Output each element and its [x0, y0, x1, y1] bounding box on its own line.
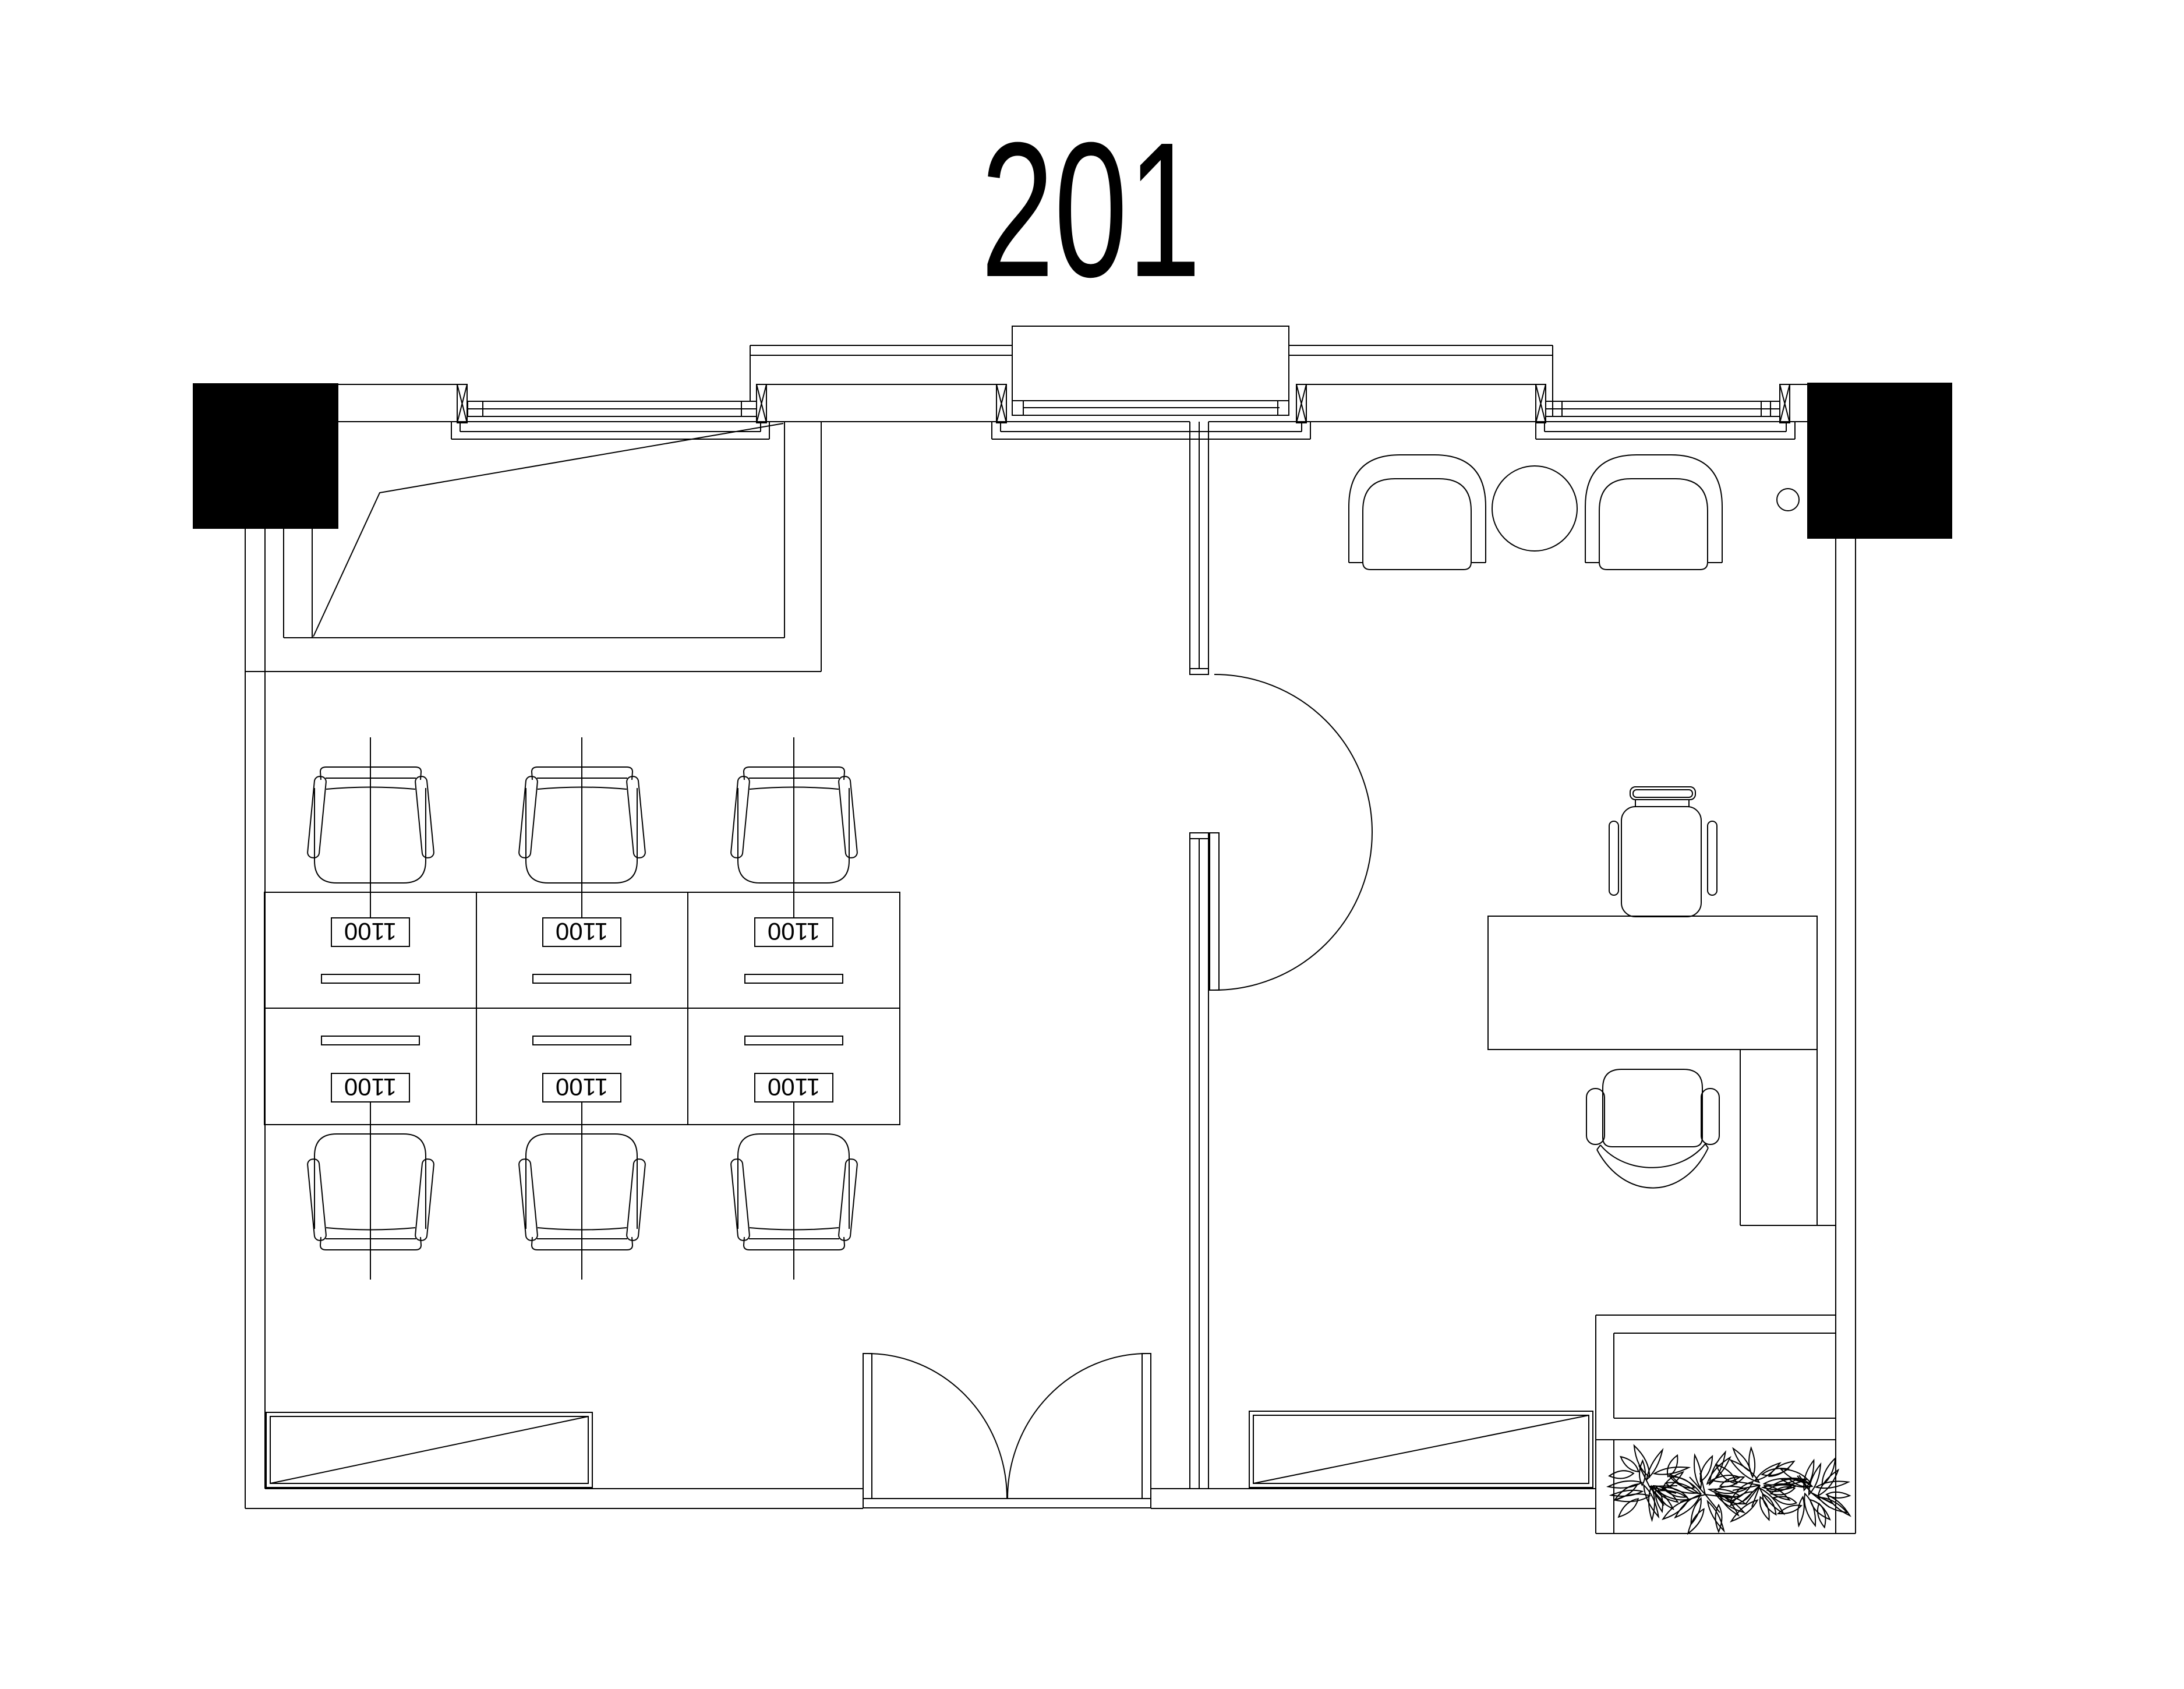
svg-text:201: 201 [981, 102, 1201, 317]
